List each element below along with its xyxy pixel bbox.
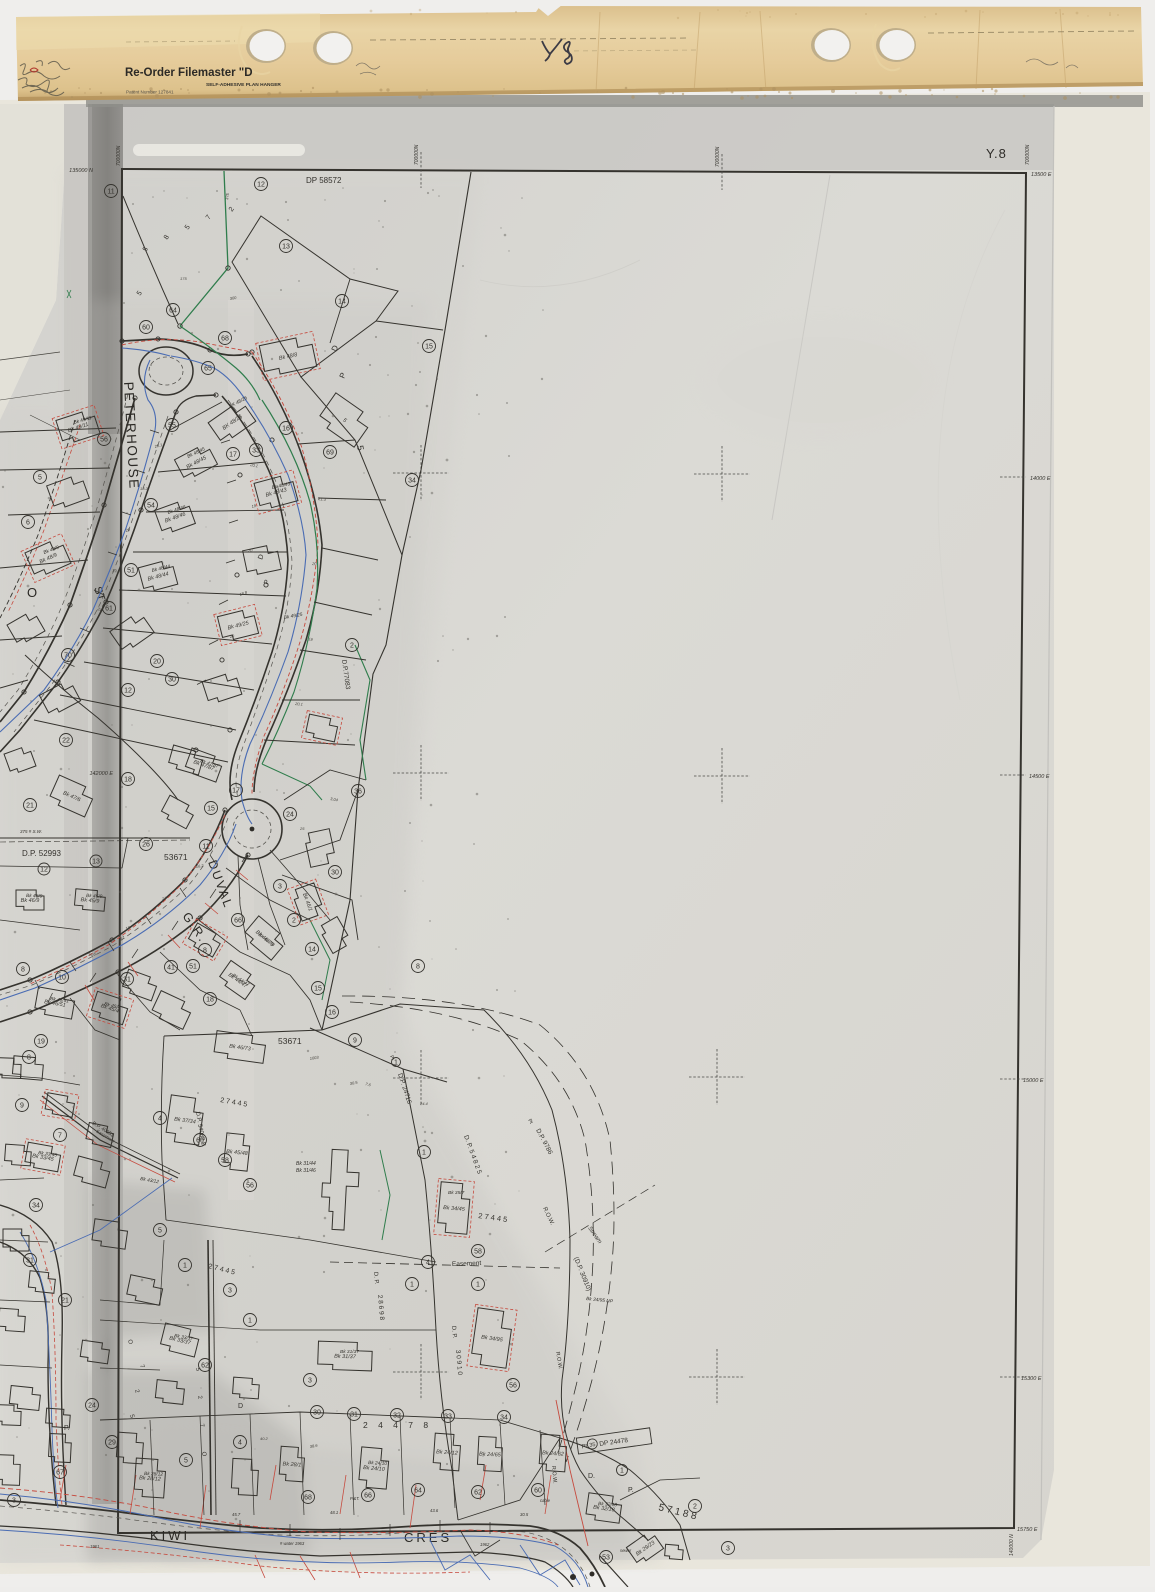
svg-text:29: 29 <box>108 1439 116 1446</box>
svg-text:21.3: 21.3 <box>317 496 327 502</box>
svg-text:15: 15 <box>207 805 215 812</box>
svg-text:# water 1963: # water 1963 <box>280 1541 305 1546</box>
svg-text:2: 2 <box>350 642 354 649</box>
svg-text:7: 7 <box>58 1132 62 1139</box>
svg-text:8: 8 <box>416 963 420 970</box>
svg-text:5: 5 <box>38 474 42 481</box>
svg-text:61: 61 <box>105 605 113 612</box>
svg-text:69: 69 <box>326 449 334 456</box>
svg-text:1: 1 <box>476 1281 480 1288</box>
svg-text:D. P.: D. P. <box>372 1272 379 1285</box>
svg-text:DP 58572: DP 58572 <box>306 176 342 185</box>
svg-text:4: 4 <box>158 1115 162 1122</box>
svg-text:142000 E: 142000 E <box>89 771 113 777</box>
svg-text:15: 15 <box>314 985 322 992</box>
svg-text:Bk 31/44: Bk 31/44 <box>296 1161 316 1167</box>
svg-text:60: 60 <box>142 324 150 331</box>
svg-text:58: 58 <box>474 1248 482 1255</box>
svg-text:3: 3 <box>228 1287 232 1294</box>
svg-text:26: 26 <box>142 841 150 848</box>
svg-text:30: 30 <box>168 676 176 683</box>
svg-text:375 # S.W.: 375 # S.W. <box>20 829 42 834</box>
svg-text:51: 51 <box>189 963 197 970</box>
svg-text:8: 8 <box>21 966 25 973</box>
svg-text:60: 60 <box>534 1487 542 1494</box>
svg-text:13500 E: 13500 E <box>1031 172 1052 178</box>
svg-text:cable: cable <box>540 1498 551 1503</box>
svg-text:3: 3 <box>308 1377 312 1384</box>
svg-text:1: 1 <box>422 1149 426 1156</box>
svg-text:62: 62 <box>201 1362 209 1369</box>
svg-text:2: 2 <box>693 1503 697 1510</box>
svg-text:P.: P. <box>64 1425 70 1432</box>
svg-text:21: 21 <box>61 1297 69 1304</box>
svg-text:34: 34 <box>500 1414 508 1421</box>
svg-text:15: 15 <box>425 343 433 350</box>
svg-text:Bk 31/46: Bk 31/46 <box>296 1168 316 1174</box>
svg-text:11: 11 <box>202 843 209 850</box>
svg-text:KIWI: KIWI <box>150 1528 190 1543</box>
svg-text:15300 E: 15300 E <box>1021 1376 1042 1382</box>
svg-text:4: 4 <box>238 1439 242 1446</box>
svg-text:64: 64 <box>414 1487 422 1494</box>
svg-text:Re-Order Filemaster "D: Re-Order Filemaster "D <box>125 67 253 79</box>
svg-text:D. P.: D. P. <box>450 1326 457 1339</box>
svg-text:24.4: 24.4 <box>419 1101 429 1106</box>
svg-text:700000N: 700000N <box>414 144 420 165</box>
svg-text:Bk 28/12: Bk 28/12 <box>144 1471 163 1478</box>
svg-text:P.: P. <box>628 1487 634 1494</box>
svg-text:48.1: 48.1 <box>330 1510 338 1515</box>
svg-text:56: 56 <box>246 1182 254 1189</box>
svg-text:1961: 1961 <box>90 1544 99 1549</box>
svg-text:14: 14 <box>308 946 316 953</box>
svg-text:25: 25 <box>299 826 305 831</box>
svg-text:21: 21 <box>26 802 34 809</box>
svg-text:5: 5 <box>158 1227 162 1234</box>
svg-text:9: 9 <box>20 1102 24 1109</box>
svg-text:43.6: 43.6 <box>430 1508 439 1513</box>
svg-text:30: 30 <box>313 1409 321 1416</box>
svg-text:67: 67 <box>56 1469 64 1476</box>
svg-text:13: 13 <box>282 243 290 250</box>
svg-text:700000N: 700000N <box>1025 144 1031 165</box>
svg-text:64: 64 <box>169 307 177 314</box>
svg-text:34: 34 <box>408 477 416 484</box>
svg-text:Bk 46/9: Bk 46/9 <box>26 893 43 900</box>
svg-text:8: 8 <box>203 947 207 954</box>
svg-text:53671: 53671 <box>164 852 188 862</box>
svg-text:34: 34 <box>32 1202 40 1209</box>
svg-text:16: 16 <box>328 1009 336 1016</box>
svg-text:16.6: 16.6 <box>88 951 97 957</box>
svg-text:68: 68 <box>304 1494 312 1501</box>
svg-text:18: 18 <box>124 776 132 783</box>
svg-text:Bk 45/9: Bk 45/9 <box>86 893 103 900</box>
svg-text:6: 6 <box>26 519 30 526</box>
svg-text:51: 51 <box>127 567 135 574</box>
svg-text:19.8: 19.8 <box>112 568 121 574</box>
svg-text:P.&T.: P.&T. <box>350 1496 360 1501</box>
svg-text:20.1: 20.1 <box>294 701 303 707</box>
svg-text:D: D <box>238 1403 243 1410</box>
svg-text:18: 18 <box>206 996 214 1003</box>
svg-text:Bk 24/65: Bk 24/65 <box>479 1451 502 1458</box>
svg-text:20: 20 <box>153 658 161 665</box>
svg-text:56: 56 <box>509 1382 517 1389</box>
svg-text:65: 65 <box>204 365 212 372</box>
svg-text:140000 N: 140000 N <box>1009 1534 1015 1556</box>
svg-text:30: 30 <box>331 869 339 876</box>
svg-text:5: 5 <box>184 1457 188 1464</box>
svg-text:31: 31 <box>26 1257 34 1264</box>
svg-text:30.5: 30.5 <box>520 1512 529 1517</box>
svg-text:70: 70 <box>64 652 72 659</box>
svg-text:2: 2 <box>292 917 296 924</box>
svg-text:66: 66 <box>364 1492 372 1499</box>
svg-text:24: 24 <box>88 1402 96 1409</box>
svg-text:SELF-ADHESIVE PLAN HANGER: SELF-ADHESIVE PLAN HANGER <box>206 82 281 88</box>
svg-text:14500 E: 14500 E <box>1029 774 1050 780</box>
svg-text:Y.8: Y.8 <box>986 146 1007 161</box>
svg-text:3: 3 <box>278 883 282 890</box>
svg-text:sewer: sewer <box>620 1548 632 1553</box>
svg-text:175: 175 <box>180 276 187 281</box>
svg-text:12: 12 <box>40 866 48 873</box>
svg-text:40.2: 40.2 <box>260 1436 269 1441</box>
svg-text:14000 E: 14000 E <box>1030 476 1051 482</box>
svg-text:Bk 24/10: Bk 24/10 <box>368 1460 388 1467</box>
svg-text:1962: 1962 <box>480 1542 490 1547</box>
svg-text:700000N: 700000N <box>715 146 721 167</box>
svg-text:1: 1 <box>248 1317 252 1324</box>
svg-text:17: 17 <box>229 451 237 458</box>
svg-text:1: 1 <box>183 1262 187 1269</box>
svg-text:12: 12 <box>124 687 132 694</box>
svg-text:68: 68 <box>221 335 229 342</box>
svg-text:18.2: 18.2 <box>140 486 149 491</box>
svg-text:32: 32 <box>393 1412 401 1419</box>
svg-text:33: 33 <box>252 447 260 454</box>
svg-text:1: 1 <box>410 1281 414 1288</box>
svg-text:54: 54 <box>147 502 155 509</box>
svg-text:11: 11 <box>107 188 114 195</box>
svg-text:Easement: Easement <box>452 1260 482 1268</box>
svg-text:3: 3 <box>726 1545 730 1552</box>
svg-text:15000 E: 15000 E <box>1023 1078 1044 1084</box>
svg-text:Bk 35/7: Bk 35/7 <box>448 1190 465 1196</box>
svg-text:19: 19 <box>37 1038 45 1045</box>
svg-text:41: 41 <box>167 964 175 971</box>
svg-text:15750 E: 15750 E <box>1017 1527 1038 1533</box>
svg-text:1: 1 <box>620 1467 624 1474</box>
svg-text:36: 36 <box>354 788 362 795</box>
svg-text:8: 8 <box>27 1054 31 1061</box>
svg-text:17: 17 <box>232 787 240 794</box>
svg-text:16: 16 <box>282 425 290 432</box>
svg-text:53671: 53671 <box>278 1036 302 1046</box>
svg-text:56: 56 <box>100 436 108 443</box>
svg-text:Bk 31/37: Bk 31/37 <box>340 1349 359 1355</box>
svg-text:45.7: 45.7 <box>232 1512 241 1517</box>
svg-text:55: 55 <box>168 422 176 429</box>
svg-text:60: 60 <box>196 1137 204 1144</box>
svg-text:D.P. 52993: D.P. 52993 <box>22 849 62 858</box>
svg-text:Patent Number 127841: Patent Number 127841 <box>126 90 174 95</box>
svg-text:12: 12 <box>257 181 265 188</box>
svg-text:22: 22 <box>62 737 70 744</box>
svg-text:13: 13 <box>92 858 100 865</box>
svg-text:4: 4 <box>426 1259 430 1266</box>
svg-text:1: 1 <box>394 1059 398 1066</box>
svg-text:14: 14 <box>338 298 346 305</box>
svg-text:D.: D. <box>588 1473 595 1480</box>
svg-text:10: 10 <box>58 974 66 981</box>
svg-text:9: 9 <box>353 1037 357 1044</box>
svg-text:31: 31 <box>350 1411 358 1418</box>
svg-text:135000 N: 135000 N <box>69 168 93 174</box>
svg-text:35: 35 <box>589 1442 596 1449</box>
svg-text:33: 33 <box>444 1413 452 1420</box>
svg-text:62: 62 <box>474 1489 482 1496</box>
svg-text:3: 3 <box>12 1497 16 1504</box>
svg-text:53: 53 <box>602 1554 610 1561</box>
svg-text:58: 58 <box>221 1157 229 1164</box>
svg-text:66: 66 <box>234 917 242 924</box>
svg-text:700000N: 700000N <box>116 145 122 166</box>
svg-text:31: 31 <box>123 976 131 983</box>
